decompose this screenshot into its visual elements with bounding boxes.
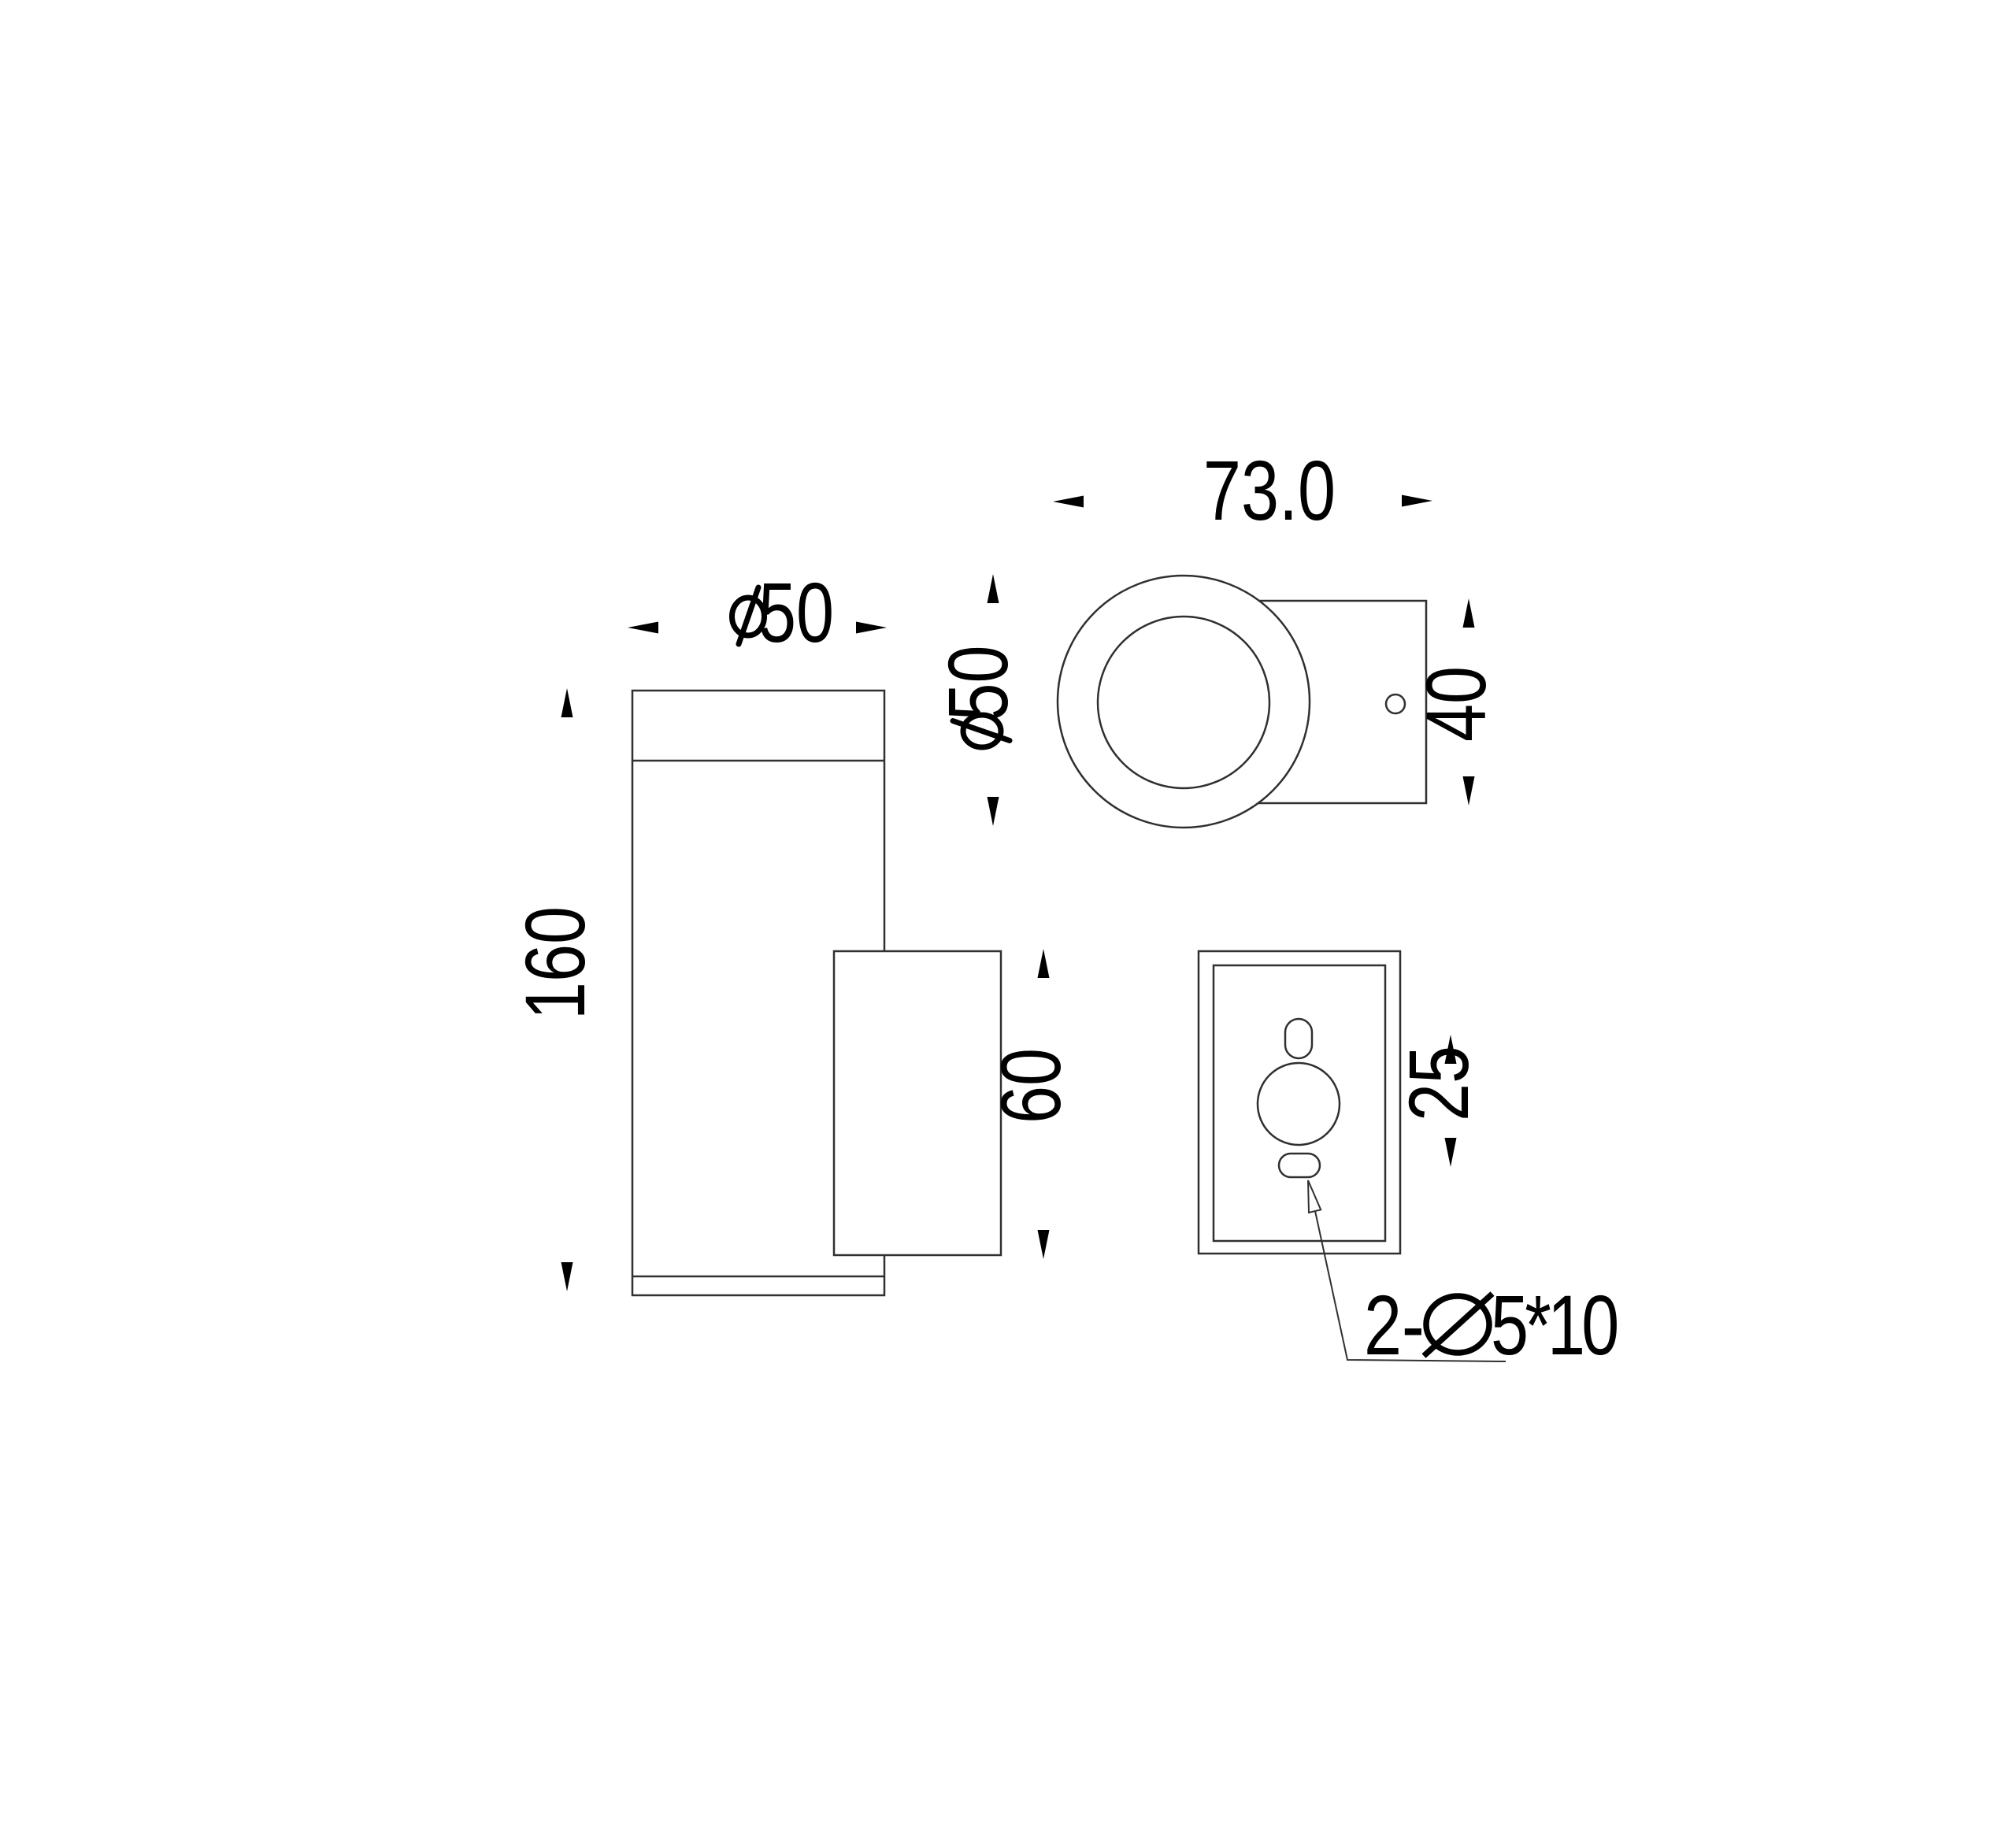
svg-text:40: 40 bbox=[1408, 666, 1503, 742]
svg-text:50: 50 bbox=[758, 565, 834, 660]
svg-text:25: 25 bbox=[1391, 1046, 1486, 1121]
svg-text:2-: 2- bbox=[1364, 1277, 1425, 1372]
svg-text:50: 50 bbox=[930, 645, 1025, 720]
svg-text:5*10: 5*10 bbox=[1491, 1277, 1617, 1372]
svg-text:73.0: 73.0 bbox=[1203, 443, 1336, 538]
svg-text:160: 160 bbox=[507, 906, 602, 1020]
svg-text:60: 60 bbox=[983, 1048, 1078, 1124]
